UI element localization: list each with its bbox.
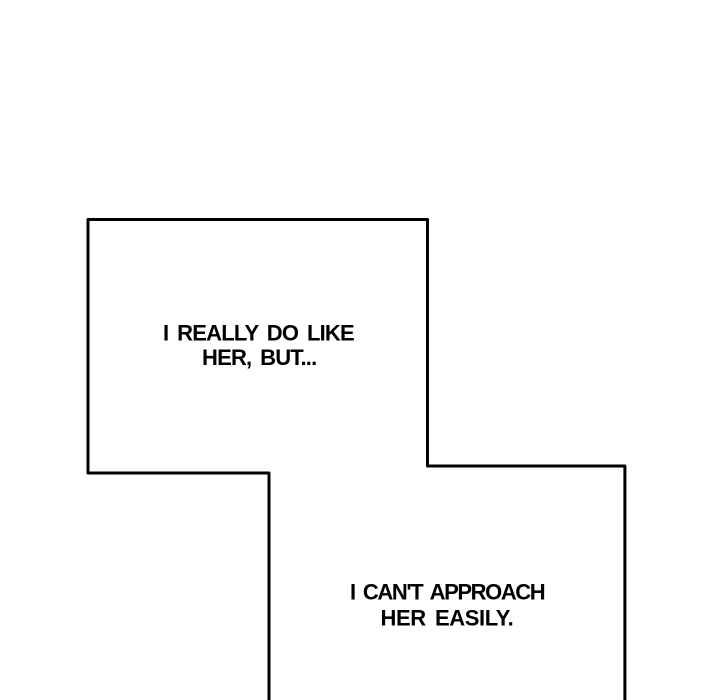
svg-text:I REALLY DO LIKE: I REALLY DO LIKE <box>163 321 355 346</box>
svg-text:HER, BUT...: HER, BUT... <box>202 345 317 370</box>
svg-text:HER EASILY.: HER EASILY. <box>381 606 514 631</box>
svg-text:I CAN'T APPROACH: I CAN'T APPROACH <box>350 580 546 605</box>
